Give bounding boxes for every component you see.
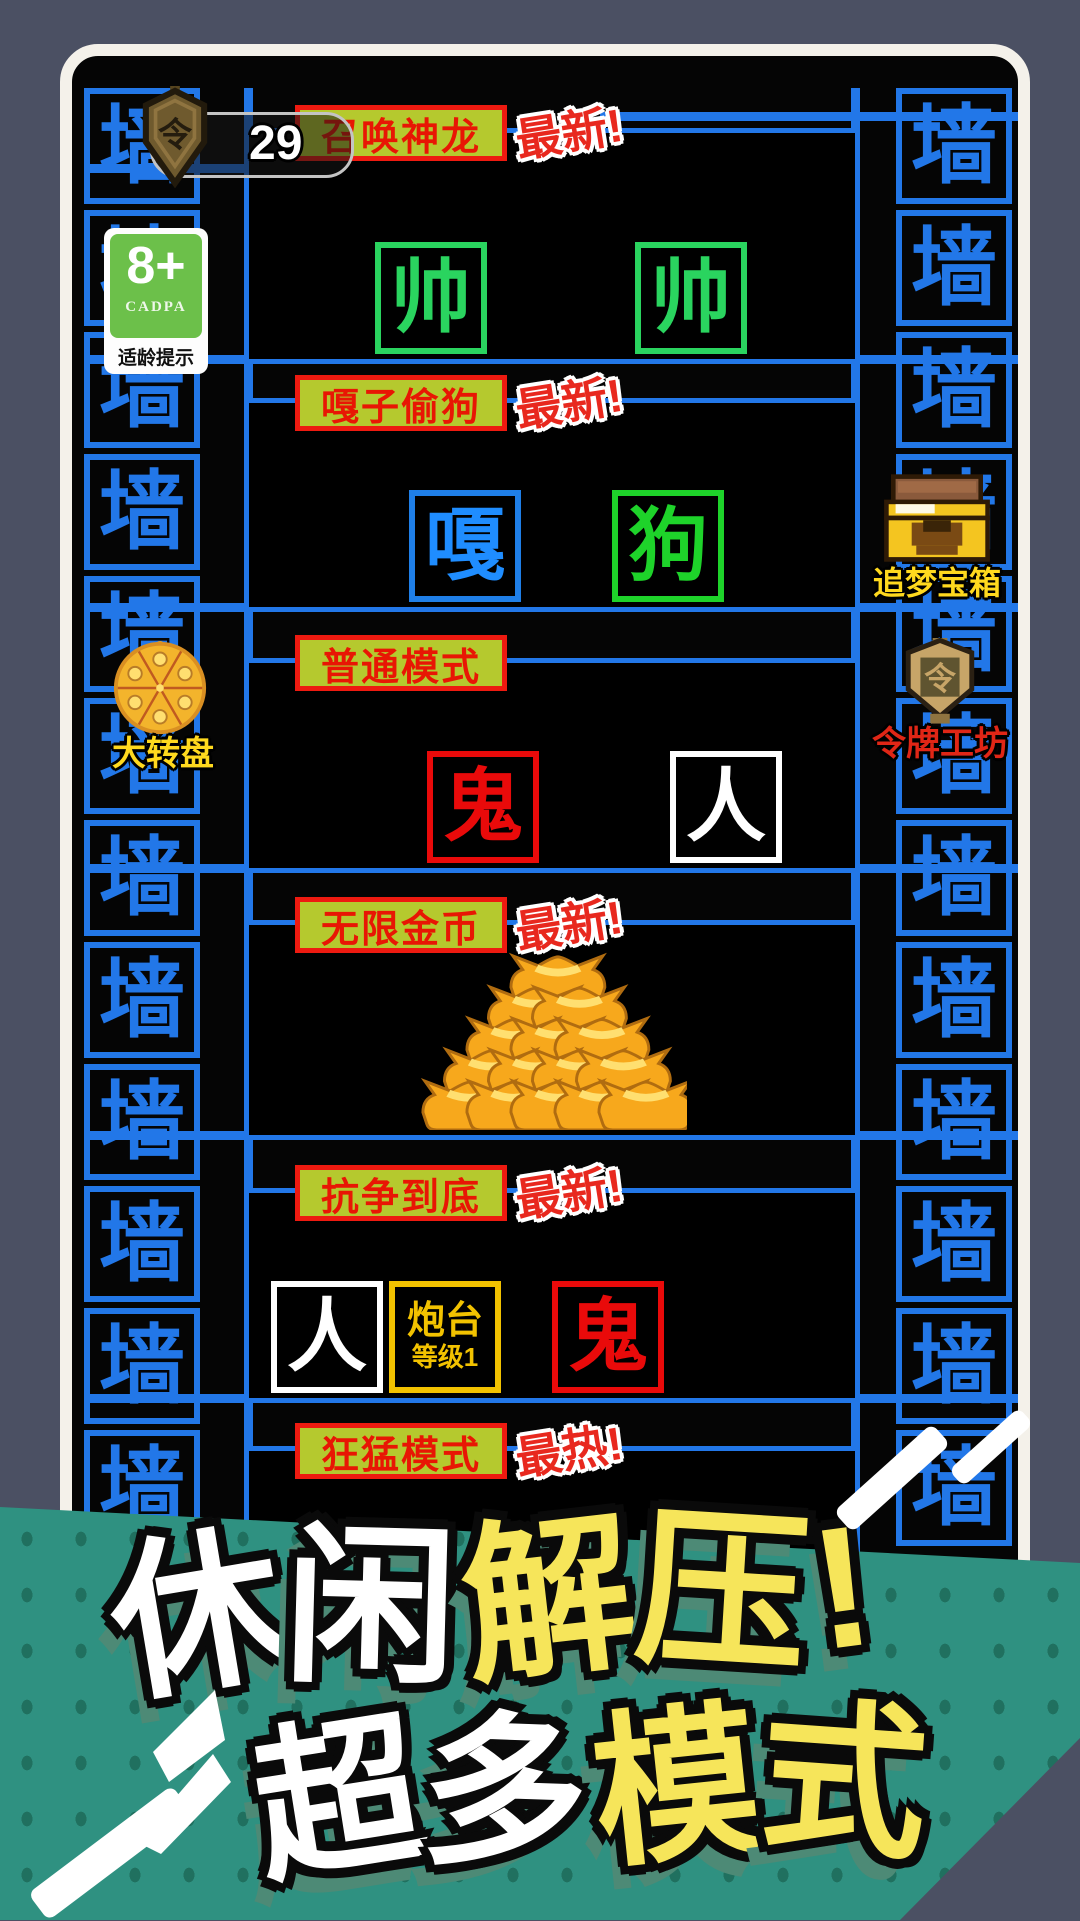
char-box-human: 人 xyxy=(670,751,782,863)
age-org: CADPA xyxy=(125,299,186,316)
maze-line xyxy=(860,355,1018,364)
banner-char: 多 xyxy=(418,1655,592,1902)
mode-panel-steal-dog[interactable]: 嘎子偷狗 最新! 嘎 狗 xyxy=(244,398,860,612)
token-workshop-icon[interactable]: 令 xyxy=(898,638,982,726)
turret-name: 炮台 xyxy=(407,1301,483,1343)
maze-line xyxy=(84,603,244,612)
maze-line xyxy=(860,1131,1018,1140)
gold-ingot-pile-icon xyxy=(419,952,687,1130)
mode-title-tab: 嘎子偷狗 xyxy=(295,375,507,431)
char-glyph: 狗 xyxy=(628,506,708,586)
mode-title-tab: 抗争到底 xyxy=(295,1165,507,1221)
wall-glyph: 墙 xyxy=(911,957,997,1043)
char-glyph: 帅 xyxy=(651,258,731,338)
age-caption: 适龄提示 xyxy=(118,343,194,370)
workshop-glyph: 令 xyxy=(924,660,956,696)
char-box-shuai: 帅 xyxy=(375,242,487,354)
wall-tile: 墙 xyxy=(84,454,200,570)
maze-line xyxy=(860,864,1018,873)
wall-glyph: 墙 xyxy=(911,1201,997,1287)
wall-glyph: 墙 xyxy=(99,957,185,1043)
char-glyph: 鬼 xyxy=(443,767,523,847)
wall-tile: 墙 xyxy=(84,1064,200,1180)
char-glyph: 嘎 xyxy=(425,506,505,586)
token-glyph: 令 xyxy=(158,117,193,155)
age-rating: 8+ xyxy=(126,234,185,299)
wall-glyph: 墙 xyxy=(911,835,997,921)
mode-title: 普通模式 xyxy=(321,636,481,691)
treasure-chest-label[interactable]: 追梦宝箱 xyxy=(852,558,1022,604)
char-box-human: 人 xyxy=(271,1281,383,1393)
wall-glyph: 墙 xyxy=(99,1079,185,1165)
banner-char: 式 xyxy=(754,1640,936,1892)
wall-tile: 墙 xyxy=(896,1186,1012,1302)
char-glyph: 人 xyxy=(686,767,766,847)
wall-tile: 墙 xyxy=(896,1064,1012,1180)
wall-tile: 墙 xyxy=(896,332,1012,448)
maze-line xyxy=(860,603,1018,612)
wall-tile: 墙 xyxy=(896,88,1012,204)
banner-char: 超 xyxy=(234,1652,436,1916)
maze-line xyxy=(84,864,244,873)
turret-level: 等级1 xyxy=(412,1342,478,1373)
char-glyph: 人 xyxy=(287,1297,367,1377)
mode-title-tab: 普通模式 xyxy=(295,635,507,691)
treasure-chest-icon[interactable] xyxy=(876,472,998,564)
banner-char: 模 xyxy=(580,1644,770,1901)
mode-panel-normal[interactable]: 普通模式 鬼 人 xyxy=(244,658,860,873)
wall-glyph: 墙 xyxy=(99,1201,185,1287)
wall-tile: 墙 xyxy=(896,820,1012,936)
char-glyph: 帅 xyxy=(391,258,471,338)
token-workshop-label[interactable]: 令牌工坊 xyxy=(850,716,1030,765)
maze-line xyxy=(600,112,1018,121)
wall-glyph: 墙 xyxy=(911,1079,997,1165)
game-screenshot: 墙 墙 墙 墙 墙 墙 墙 墙 墙 墙 墙 墙 墙 墙 墙 墙 墙 墙 墙 墙 … xyxy=(0,0,1080,1920)
maze-line xyxy=(860,1394,1018,1403)
wall-glyph: 墙 xyxy=(911,225,997,311)
wall-glyph: 墙 xyxy=(99,469,185,555)
age-rating-card: 8+ CADPA xyxy=(110,234,202,338)
char-box-ghost: 鬼 xyxy=(552,1281,664,1393)
wall-tile: 墙 xyxy=(84,1308,200,1424)
char-box-ga: 嘎 xyxy=(409,490,521,602)
wall-tile: 墙 xyxy=(84,942,200,1058)
wall-tile: 墙 xyxy=(896,1308,1012,1424)
wall-tile: 墙 xyxy=(84,1186,200,1302)
token-icon: 令 xyxy=(136,86,214,188)
age-rating-badge: 8+ CADPA 适龄提示 xyxy=(104,228,208,374)
wall-tile: 墙 xyxy=(896,210,1012,326)
mode-panel-unlimited-gold[interactable]: 无限金币 最新! xyxy=(244,920,860,1140)
token-count: 29 xyxy=(249,116,302,171)
mode-title: 无限金币 xyxy=(321,898,481,953)
wall-tile: 墙 xyxy=(896,942,1012,1058)
mode-title: 抗争到底 xyxy=(321,1166,481,1221)
prize-wheel-icon[interactable] xyxy=(112,640,208,736)
char-box-shuai: 帅 xyxy=(635,242,747,354)
char-glyph: 鬼 xyxy=(568,1297,648,1377)
mode-panel-fight-to-end[interactable]: 抗争到底 最新! 人 炮台 等级1 鬼 xyxy=(244,1188,860,1403)
char-box-dog: 狗 xyxy=(612,490,724,602)
wall-tile: 墙 xyxy=(84,820,200,936)
char-box-ghost: 鬼 xyxy=(427,751,539,863)
prize-wheel-label[interactable]: 大转盘 xyxy=(88,726,238,775)
wall-glyph: 墙 xyxy=(99,835,185,921)
mode-title-tab: 无限金币 xyxy=(295,897,507,953)
mode-title: 嘎子偷狗 xyxy=(321,376,481,431)
turret-box: 炮台 等级1 xyxy=(389,1281,501,1393)
maze-line xyxy=(84,1131,244,1140)
maze-line xyxy=(84,1394,244,1403)
